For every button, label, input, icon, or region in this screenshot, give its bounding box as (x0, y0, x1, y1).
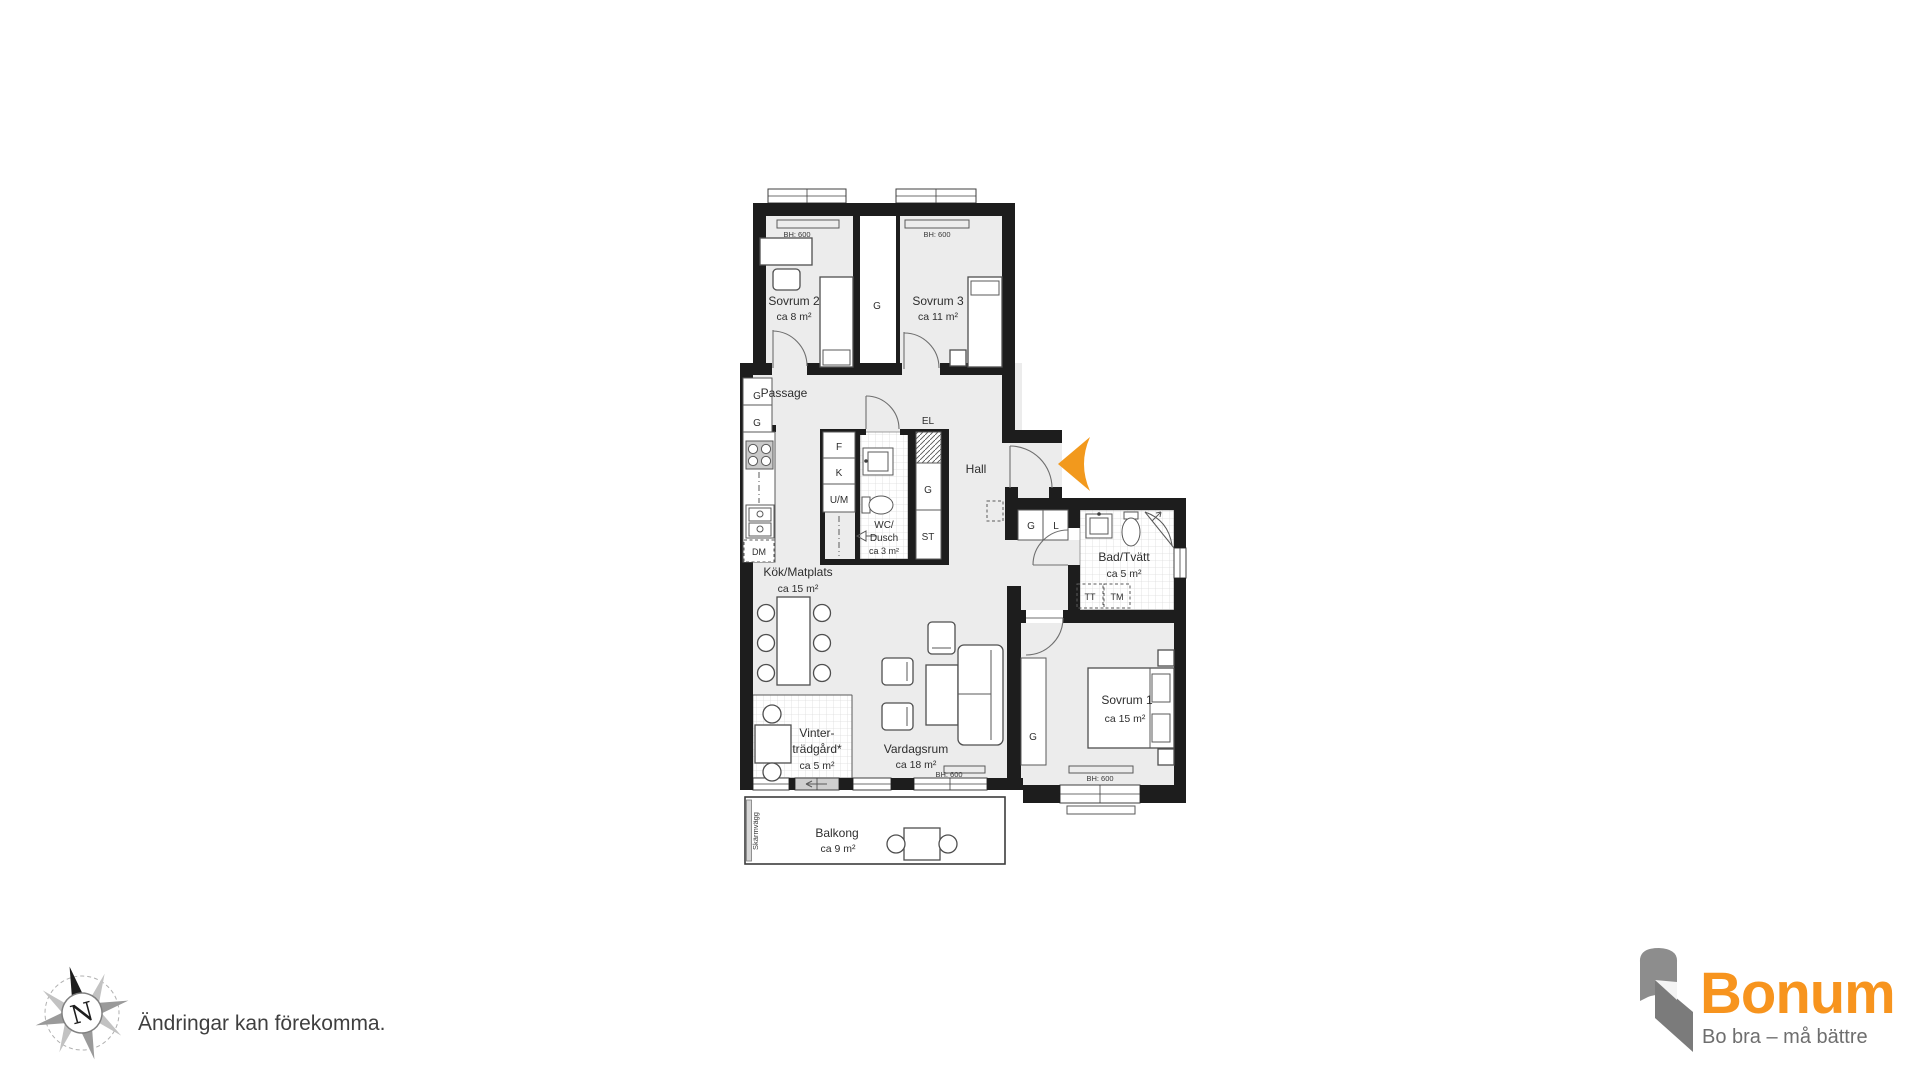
balcony-chair (939, 835, 957, 853)
room-area-bad: ca 5 m² (1106, 568, 1142, 580)
dining-chair (758, 665, 775, 682)
wc-toilet (869, 496, 893, 514)
room-label-passage: Passage (761, 386, 808, 400)
dining-table (777, 597, 810, 685)
garden-chair (763, 705, 781, 723)
room-label-vinter-line2: trädgård* (792, 742, 842, 756)
cleaning-label: ST (922, 532, 935, 543)
bedside-table (1158, 749, 1174, 765)
closet-sovrum1 (1021, 658, 1046, 765)
desk-chair (773, 269, 800, 290)
room-label-wc-line2: Dusch (870, 533, 898, 544)
room-label-balkong: Balkong (815, 826, 858, 840)
closet-bedrooms (860, 216, 896, 363)
fridge-label: K (836, 468, 843, 479)
el-closet (916, 432, 941, 463)
room-label-vardagsrum: Vardagsrum (884, 742, 948, 756)
screen-wall-label: Skärmvägg (751, 812, 760, 850)
desk (760, 238, 812, 265)
dining-chair (758, 605, 775, 622)
brand-logo: Bonum Bo bra – må bättre (1640, 948, 1895, 1052)
balcony-table (904, 828, 940, 860)
balcony-chair (887, 835, 905, 853)
closet-label: G (873, 301, 881, 312)
floorplan-drawing: Sovrum 2 ca 8 m² G Sovrum 3 ca 11 m² BH:… (0, 0, 1920, 1080)
dining-chair (814, 635, 831, 652)
window-head-label: BH: 600 (923, 230, 950, 239)
oven-micro-label: U/M (830, 495, 848, 506)
bad-toilet (1122, 518, 1140, 546)
bed-single (820, 277, 853, 367)
room-label-sovrum3: Sovrum 3 (912, 294, 964, 308)
dishwasher-label: DM (752, 547, 766, 557)
closet-label: G (1029, 732, 1037, 743)
room-area-vardagsrum: ca 18 m² (896, 759, 937, 771)
brand-tagline: Bo bra – må bättre (1702, 1026, 1868, 1048)
bed-single (968, 277, 1002, 367)
room-area-kok: ca 15 m² (778, 583, 819, 595)
room-area-vinter: ca 5 m² (799, 760, 835, 772)
closet-label: G (753, 418, 761, 429)
dining-chair (758, 635, 775, 652)
sofa (958, 645, 1003, 745)
window-head-label: BH: 600 (783, 230, 810, 239)
room-label-bad: Bad/Tvätt (1098, 550, 1150, 564)
room-label-sovrum2: Sovrum 2 (768, 294, 820, 308)
freezer-label: F (836, 442, 842, 453)
closet-label: G (924, 485, 932, 496)
balcony (745, 797, 1005, 864)
armchair (882, 703, 913, 730)
page: Sovrum 2 ca 8 m² G Sovrum 3 ca 11 m² BH:… (0, 0, 1920, 1080)
garden-table (755, 725, 791, 763)
window-bad-tvatt (1174, 548, 1186, 578)
closet-label: G (1027, 521, 1035, 532)
armchair (882, 658, 913, 685)
armchair (928, 622, 955, 654)
garden-chair (763, 763, 781, 781)
dryer-label: TT (1085, 592, 1096, 602)
window-head-label: BH: 600 (1086, 774, 1113, 783)
bedside-table (950, 350, 966, 366)
washer-label: TM (1111, 592, 1124, 602)
dining-chair (814, 605, 831, 622)
disclaimer-note: Ändringar kan förekomma. (138, 1012, 385, 1035)
room-label-hall: Hall (966, 462, 987, 476)
bedside-table (1158, 650, 1174, 666)
linen-label: L (1053, 521, 1059, 532)
room-label-wc-line1: WC/ (874, 520, 894, 531)
room-label-kok: Kök/Matplats (763, 565, 832, 579)
closet-label: G (753, 391, 761, 402)
window-head-label: BH: 600 (935, 770, 962, 779)
room-area-sovrum3: ca 11 m² (918, 311, 959, 323)
dining-chair (814, 665, 831, 682)
coffee-table (926, 665, 958, 725)
room-label-vinter-line1: Vinter- (799, 726, 834, 740)
bed-double (1088, 668, 1174, 748)
entrance-arrow (1058, 437, 1090, 491)
room-area-balkong: ca 9 m² (820, 843, 856, 855)
room-area-sovrum1: ca 15 m² (1105, 713, 1146, 725)
brand-name: Bonum (1700, 961, 1895, 1026)
room-label-sovrum1: Sovrum 1 (1101, 693, 1153, 707)
room-area-wc: ca 3 m² (869, 546, 899, 556)
compass-rose: N (23, 954, 141, 1072)
room-area-sovrum2: ca 8 m² (776, 311, 812, 323)
el-label: EL (922, 416, 935, 427)
